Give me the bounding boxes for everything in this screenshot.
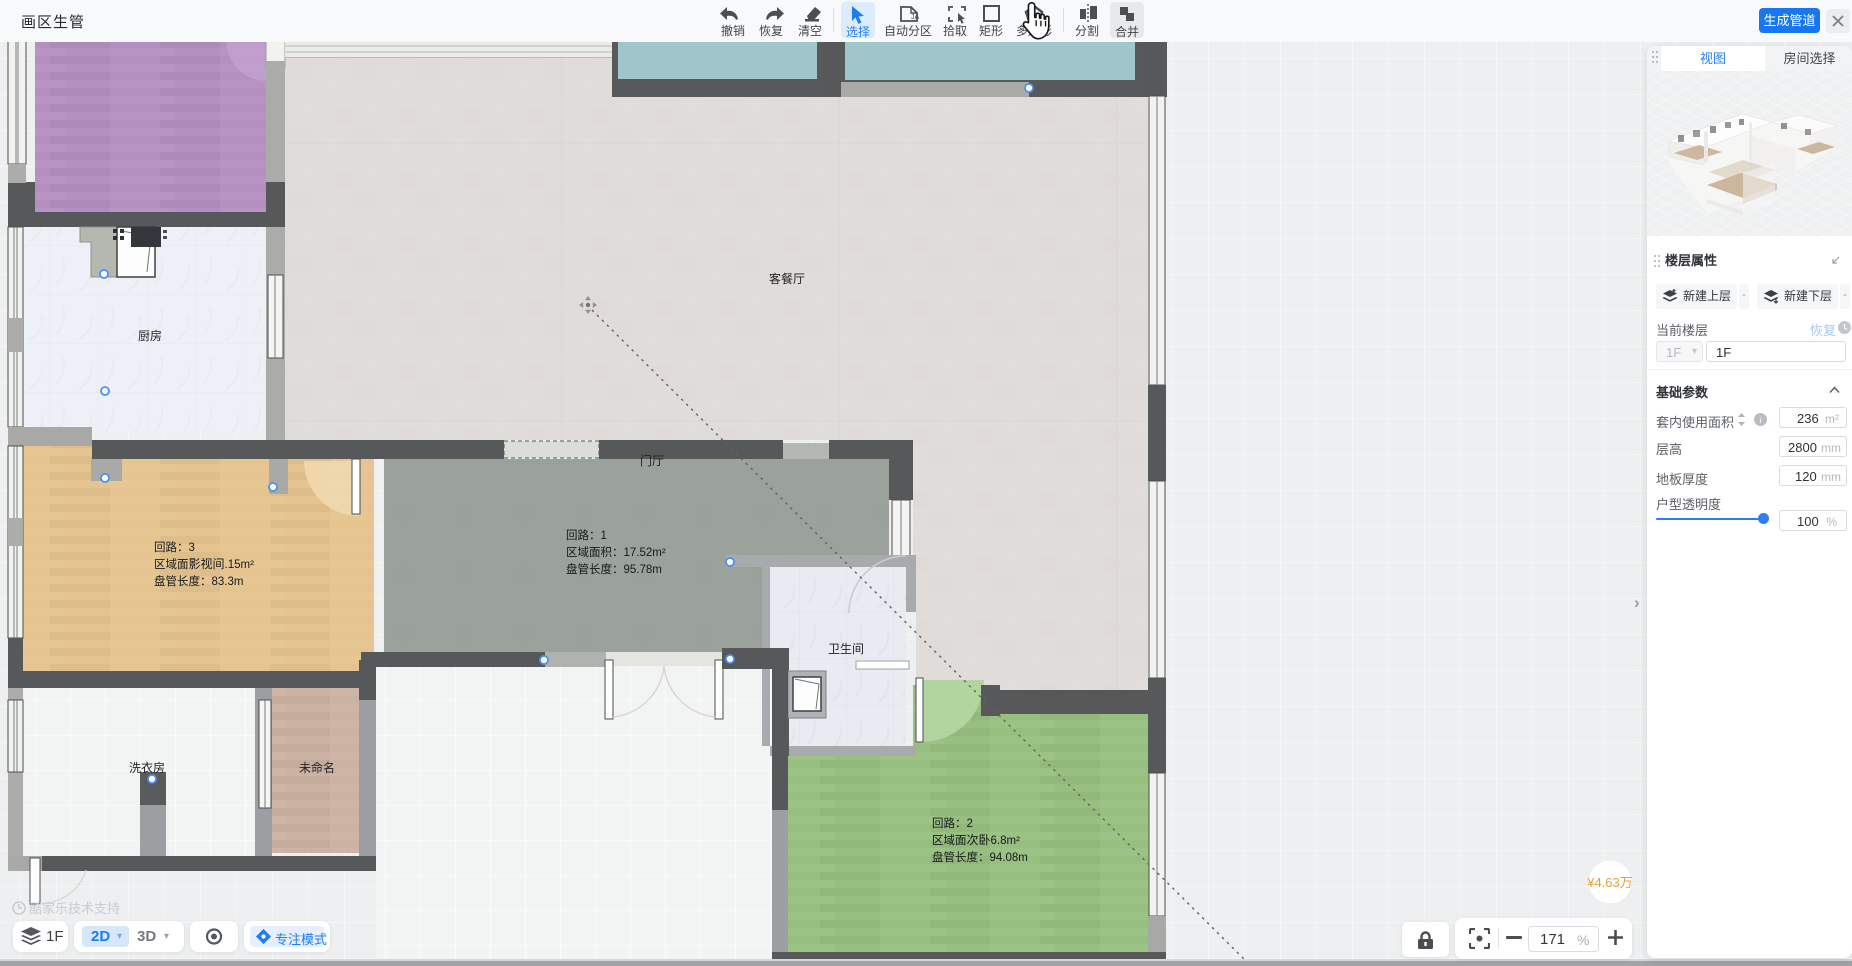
svg-text:未命名: 未命名 — [299, 760, 335, 775]
svg-text:卫生间: 卫生间 — [828, 642, 864, 656]
svg-text:洗衣房: 洗衣房 — [129, 760, 165, 775]
svg-text:JA: JA — [911, 14, 920, 21]
svg-text:酷家乐技术支持: 酷家乐技术支持 — [29, 901, 120, 916]
svg-text:区域面影视间.15m²: 区域面影视间.15m² — [154, 556, 254, 571]
svg-text:门厅: 门厅 — [640, 453, 664, 468]
svg-text:客餐厅: 客餐厅 — [769, 271, 805, 286]
svg-text:回路：2: 回路：2 — [932, 816, 973, 830]
svg-text:厨房: 厨房 — [138, 328, 162, 343]
svg-text:盘管长度：95.78m: 盘管长度：95.78m — [566, 562, 662, 576]
svg-text:盘管长度：83.3m: 盘管长度：83.3m — [154, 574, 243, 588]
svg-text:¥4.63万: ¥4.63万 — [1586, 875, 1633, 890]
svg-text:回路：3: 回路：3 — [154, 540, 195, 554]
svg-text:区域面次卧6.8m²: 区域面次卧6.8m² — [932, 833, 1020, 847]
svg-text:›: › — [1634, 593, 1640, 612]
svg-text:盘管长度：94.08m: 盘管长度：94.08m — [932, 850, 1028, 864]
svg-text:区域面积：17.52m²: 区域面积：17.52m² — [566, 546, 666, 559]
svg-text:回路：1: 回路：1 — [566, 528, 607, 542]
